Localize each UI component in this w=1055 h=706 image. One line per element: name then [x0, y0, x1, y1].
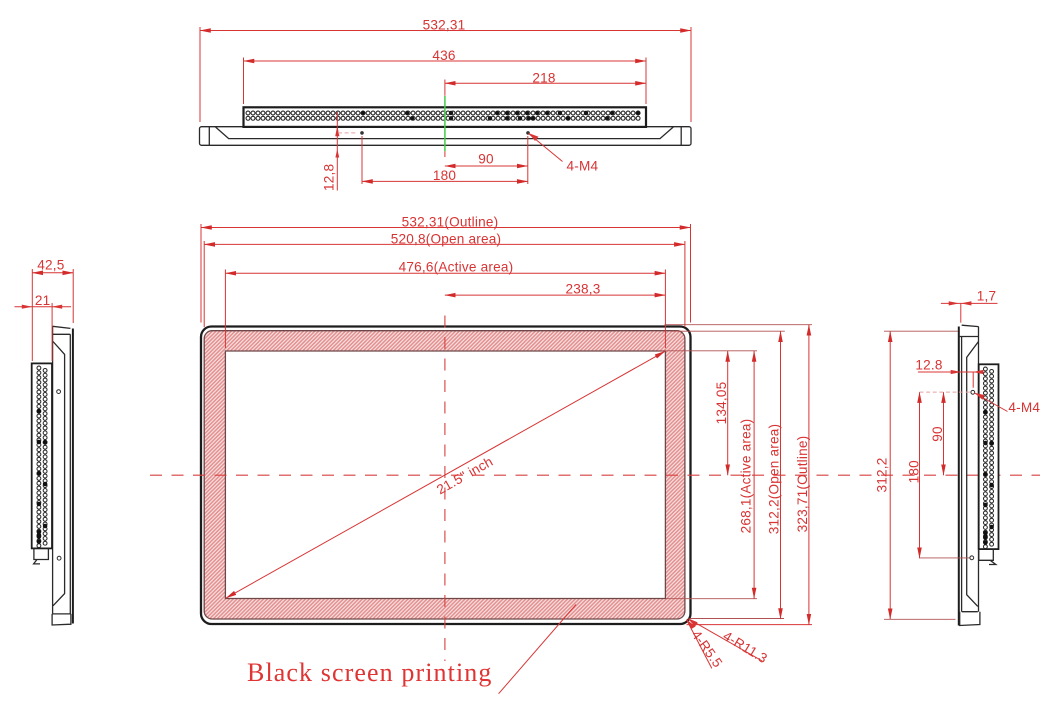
svg-text:12.8: 12.8	[915, 358, 942, 373]
svg-text:532,31(Outline): 532,31(Outline)	[402, 215, 499, 230]
svg-text:520,8(Open area): 520,8(Open area)	[391, 231, 502, 246]
svg-text:180: 180	[433, 168, 457, 183]
svg-text:21: 21	[35, 293, 51, 308]
svg-text:134,05: 134,05	[714, 382, 729, 425]
svg-text:312,2(Open area): 312,2(Open area)	[767, 424, 782, 535]
svg-text:323,71(Outline): 323,71(Outline)	[795, 436, 810, 533]
svg-text:218: 218	[532, 70, 555, 85]
svg-text:436: 436	[432, 48, 455, 63]
svg-text:4-M4: 4-M4	[1008, 400, 1040, 415]
svg-text:Black screen printing: Black screen printing	[247, 658, 492, 687]
svg-text:312,2: 312,2	[875, 457, 890, 492]
svg-text:90: 90	[478, 151, 494, 166]
svg-text:4-M4: 4-M4	[567, 159, 599, 174]
svg-text:476,6(Active area): 476,6(Active area)	[399, 260, 514, 275]
svg-text:42,5: 42,5	[37, 258, 64, 273]
svg-text:180: 180	[907, 460, 922, 484]
svg-text:12,8: 12,8	[322, 164, 337, 191]
svg-text:1,7: 1,7	[977, 289, 997, 304]
svg-text:268,1(Active area): 268,1(Active area)	[739, 419, 754, 534]
svg-text:90: 90	[930, 426, 945, 442]
svg-text:532,31: 532,31	[423, 17, 466, 32]
svg-text:238,3: 238,3	[565, 282, 600, 297]
